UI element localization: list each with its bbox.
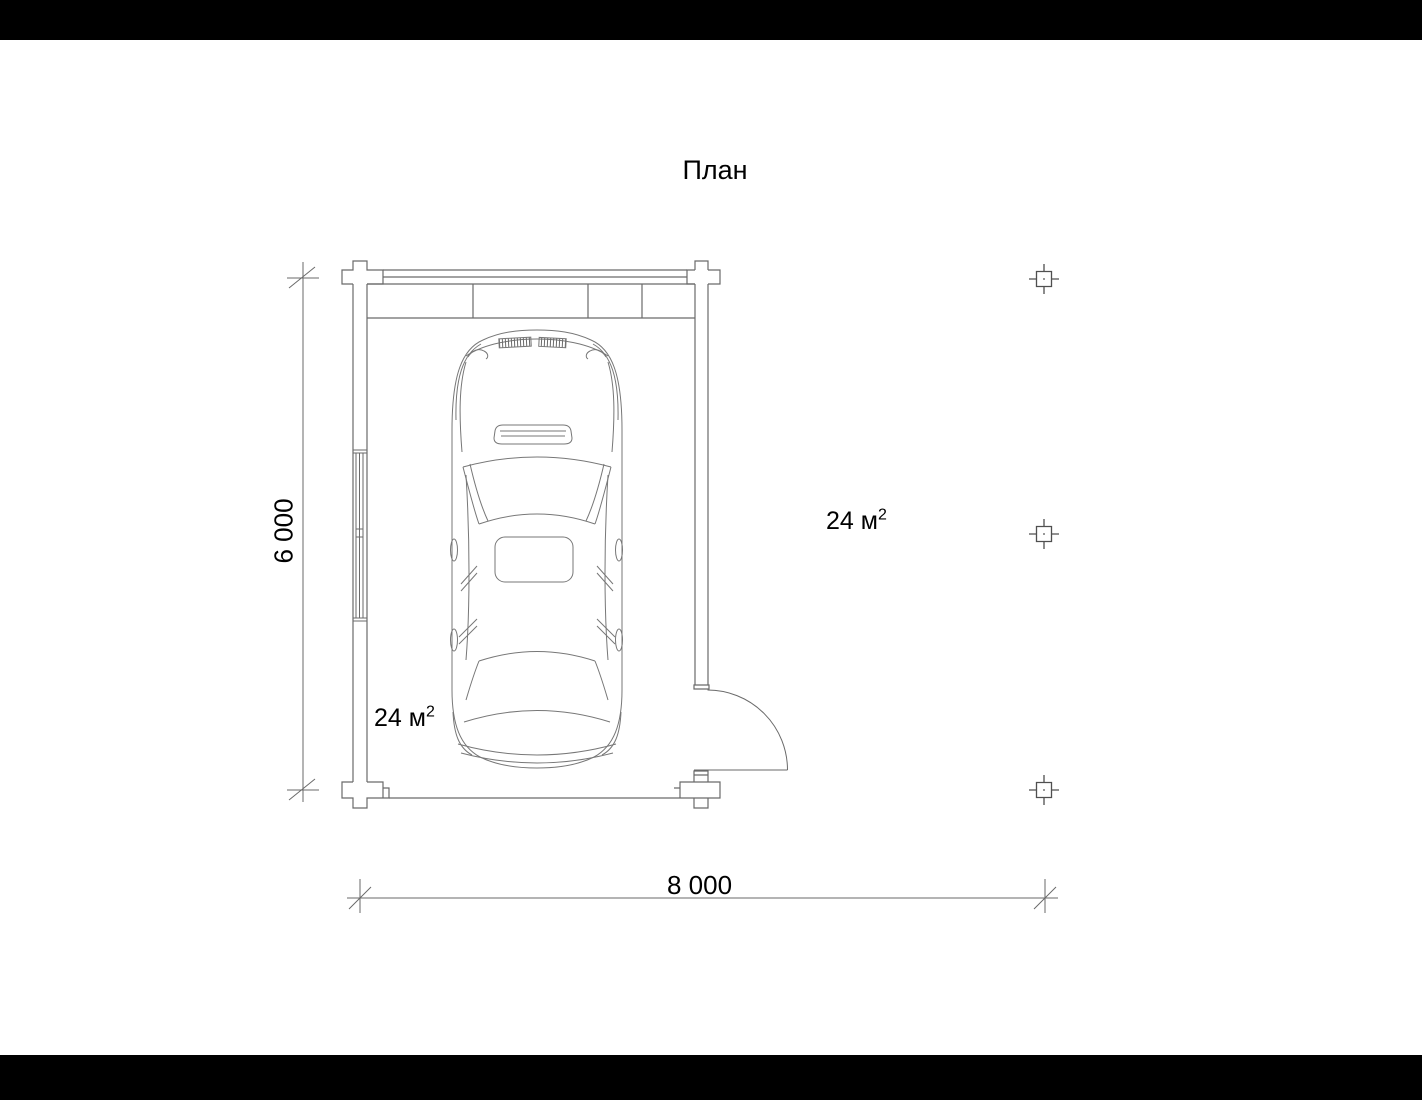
garage-area-value: 24 м [374,704,426,732]
garage-area-label: 24 м2 [374,704,435,733]
door-handle-front-right [616,539,623,561]
garage-gate [367,284,695,318]
carport-area-label: 24 м2 [826,507,887,536]
grille-strip-right [539,337,566,347]
grille-strip-left [499,337,531,348]
door-swing [694,690,788,770]
column-bottom-right [674,771,720,808]
column-bottom-left [342,782,389,808]
carport-area-sup: 2 [878,507,887,524]
column-top-left [342,261,383,284]
gate-band [367,284,695,318]
garage-area-sup: 2 [426,704,435,721]
hood-scoop [494,425,572,444]
side-sill-lines [466,475,608,660]
sunroof [495,537,573,582]
hood-creases [460,362,614,452]
c-pillars [466,661,608,700]
h-dim-tick-left [349,879,371,913]
plan-title: План [635,155,795,186]
door-handle-rear-right [616,629,623,651]
column-marker-top [1029,264,1059,294]
windshield-base [463,457,611,467]
roof-front-edge [479,514,595,524]
a-pillars [463,464,611,524]
window [353,450,367,621]
drawing-page: План 6 000 8 000 24 м2 24 м2 [0,0,1422,1100]
right-wall [694,284,709,689]
door-arc [708,690,788,770]
gate-lintel-beam [383,270,687,277]
rear-deck-edge [464,711,610,723]
headlight-left [468,350,488,359]
column-marker-bottom [1029,775,1059,805]
front-bumper-creases [456,339,618,420]
column-top-right [687,261,720,284]
trunk-rear-edge [458,744,616,755]
window-glazing-lines [356,453,363,618]
vertical-dimension-label: 6 000 [269,498,300,563]
car-body-outline [452,330,622,768]
headlight-right [586,350,606,359]
roof-rear-edge [479,652,595,662]
column-marker-middle [1029,519,1059,549]
gate-panel-dividers [473,284,642,318]
h-dim-tick-right [1034,879,1056,913]
horizontal-dimension-label: 8 000 [667,870,732,901]
car-top-view [451,330,623,768]
carport-area-value: 24 м [826,507,878,535]
column-markers [1029,264,1059,805]
